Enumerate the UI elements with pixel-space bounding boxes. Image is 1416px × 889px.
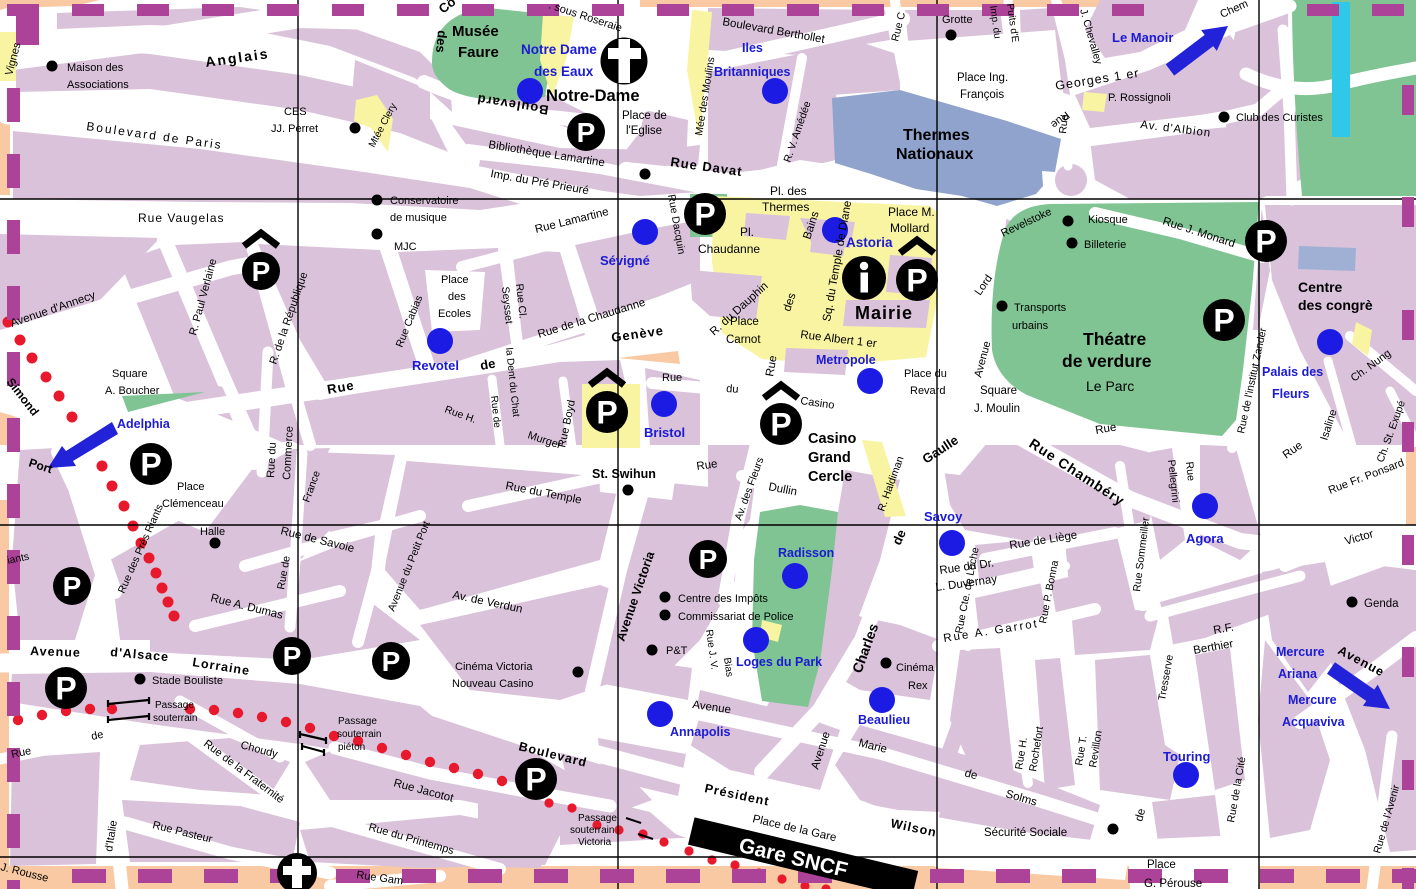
- svg-text:Pl.: Pl.: [740, 225, 754, 239]
- svg-text:des: des: [448, 291, 466, 303]
- svg-text:A. Boucher: A. Boucher: [105, 385, 160, 397]
- svg-text:de: de: [479, 356, 497, 373]
- svg-text:Nationaux: Nationaux: [896, 146, 973, 163]
- svg-text:Place: Place: [441, 274, 469, 286]
- svg-text:Place: Place: [1147, 859, 1176, 871]
- svg-text:Casino: Casino: [808, 431, 856, 447]
- svg-text:Chaudanne: Chaudanne: [698, 242, 760, 256]
- svg-text:Revotel: Revotel: [412, 358, 459, 373]
- svg-text:Ariana: Ariana: [1278, 667, 1318, 681]
- svg-text:Annapolis: Annapolis: [670, 725, 730, 739]
- svg-text:P&T: P&T: [666, 645, 688, 657]
- svg-text:de: de: [90, 729, 104, 743]
- svg-text:Le Manoir: Le Manoir: [1112, 30, 1173, 45]
- svg-text:Conservatoire: Conservatoire: [390, 195, 458, 207]
- svg-text:Beaulieu: Beaulieu: [858, 713, 910, 727]
- svg-text:Genda: Genda: [1364, 598, 1399, 610]
- svg-text:Acquaviva: Acquaviva: [1282, 715, 1346, 729]
- svg-text:Billeterie: Billeterie: [1084, 239, 1126, 251]
- svg-text:l'Eglise: l'Eglise: [626, 125, 662, 137]
- svg-text:Square: Square: [980, 385, 1017, 397]
- svg-text:Bristol: Bristol: [644, 425, 685, 440]
- svg-text:Sévigné: Sévigné: [600, 253, 650, 268]
- svg-text:Passage: Passage: [578, 813, 617, 824]
- svg-text:Place: Place: [177, 481, 205, 493]
- svg-text:Mercure: Mercure: [1276, 645, 1325, 659]
- svg-text:Metropole: Metropole: [816, 353, 876, 367]
- svg-text:Sécurité Sociale: Sécurité Sociale: [984, 827, 1067, 839]
- svg-text:Rex: Rex: [908, 680, 928, 692]
- svg-text:Grand: Grand: [808, 450, 851, 466]
- svg-text:Thermes: Thermes: [762, 200, 809, 214]
- svg-text:Square: Square: [112, 368, 147, 380]
- svg-text:Kiosque: Kiosque: [1088, 214, 1128, 226]
- svg-text:JJ. Perret: JJ. Perret: [271, 123, 318, 135]
- svg-text:Place de: Place de: [622, 110, 667, 122]
- svg-text:de musique: de musique: [390, 212, 447, 224]
- svg-text:souterrain: souterrain: [153, 713, 197, 724]
- svg-text:Mairie: Mairie: [855, 303, 913, 323]
- svg-text:Radisson: Radisson: [778, 546, 834, 560]
- svg-text:des congrè: des congrè: [1298, 297, 1373, 313]
- svg-text:Place: Place: [730, 316, 759, 328]
- svg-text:des: des: [433, 30, 450, 54]
- svg-text:Transports: Transports: [1014, 302, 1067, 314]
- svg-text:Notre Dame: Notre Dame: [521, 42, 597, 57]
- svg-text:Cinéma: Cinéma: [896, 662, 935, 674]
- svg-text:Thermes: Thermes: [903, 127, 970, 144]
- svg-text:Place Ing.: Place Ing.: [957, 72, 1008, 84]
- svg-text:Ecoles: Ecoles: [438, 308, 472, 320]
- svg-text:Musée: Musée: [452, 23, 499, 40]
- svg-text:St. Swihun: St. Swihun: [592, 467, 656, 481]
- svg-text:Rue: Rue: [662, 372, 682, 384]
- svg-text:Rue du: Rue du: [265, 442, 279, 478]
- svg-text:Passage: Passage: [155, 700, 194, 711]
- svg-text:Avenue: Avenue: [30, 644, 81, 660]
- svg-text:souterrain: souterrain: [570, 825, 614, 836]
- svg-text:Théatre: Théatre: [1083, 329, 1146, 349]
- svg-text:Mercure: Mercure: [1288, 693, 1337, 707]
- svg-text:Carnot: Carnot: [726, 334, 761, 346]
- svg-text:Clémenceau: Clémenceau: [162, 498, 224, 510]
- svg-text:de verdure: de verdure: [1062, 351, 1152, 371]
- svg-text:Notre-Dame: Notre-Dame: [546, 87, 640, 105]
- svg-text:Maison des: Maison des: [67, 62, 124, 74]
- svg-text:Rue: Rue: [1183, 461, 1197, 482]
- svg-text:P. Rossignoli: P. Rossignoli: [1108, 92, 1171, 104]
- svg-text:CES: CES: [284, 106, 307, 118]
- svg-text:Cinéma Victoria: Cinéma Victoria: [455, 661, 533, 673]
- svg-text:Passage: Passage: [338, 716, 377, 727]
- svg-text:urbains: urbains: [1012, 320, 1049, 332]
- svg-text:Revard: Revard: [910, 385, 945, 397]
- svg-text:J. Moulin: J. Moulin: [974, 403, 1020, 415]
- svg-text:Britanniques: Britanniques: [714, 65, 790, 79]
- svg-text:Faure: Faure: [458, 44, 499, 61]
- svg-text:Agora: Agora: [1186, 531, 1224, 546]
- svg-text:Centre des Impôts: Centre des Impôts: [678, 593, 768, 605]
- svg-text:Palais des: Palais des: [1262, 365, 1323, 379]
- svg-text:Savoy: Savoy: [924, 509, 963, 524]
- svg-text:souterrain: souterrain: [337, 729, 381, 740]
- svg-text:du: du: [726, 383, 739, 396]
- svg-text:piéton: piéton: [338, 742, 365, 753]
- svg-text:Mollard: Mollard: [890, 221, 929, 235]
- svg-text:Adelphia: Adelphia: [117, 417, 171, 431]
- svg-text:Le Parc: Le Parc: [1086, 378, 1134, 394]
- svg-text:Nouveau Casino: Nouveau Casino: [452, 678, 533, 690]
- svg-text:Cercle: Cercle: [808, 469, 852, 485]
- svg-text:Rue Vaugelas: Rue Vaugelas: [138, 211, 225, 225]
- svg-text:François: François: [960, 89, 1004, 101]
- svg-text:Halle: Halle: [200, 526, 225, 538]
- svg-text:Victoria: Victoria: [578, 837, 612, 848]
- svg-text:Grotte: Grotte: [942, 14, 973, 26]
- svg-text:des Eaux: des Eaux: [534, 64, 594, 79]
- svg-text:Astoria: Astoria: [846, 235, 893, 250]
- svg-text:Club des Curistes: Club des Curistes: [1236, 112, 1323, 124]
- svg-text:Place M.: Place M.: [888, 205, 935, 219]
- svg-text:Centre: Centre: [1298, 279, 1343, 295]
- svg-text:Loges du Park: Loges du Park: [736, 655, 822, 669]
- svg-text:Stade Bouliste: Stade Bouliste: [152, 675, 223, 687]
- svg-text:Commissariat de Police: Commissariat de Police: [678, 611, 794, 623]
- svg-text:Iles: Iles: [742, 41, 763, 55]
- svg-text:MJC: MJC: [394, 241, 417, 253]
- svg-text:Place du: Place du: [904, 368, 947, 380]
- svg-text:Associations: Associations: [67, 79, 129, 91]
- svg-text:Touring: Touring: [1163, 749, 1210, 764]
- svg-text:Fleurs: Fleurs: [1272, 387, 1310, 401]
- svg-text:Pl. des: Pl. des: [770, 184, 807, 198]
- svg-text:G. Pérouse: G. Pérouse: [1144, 878, 1202, 889]
